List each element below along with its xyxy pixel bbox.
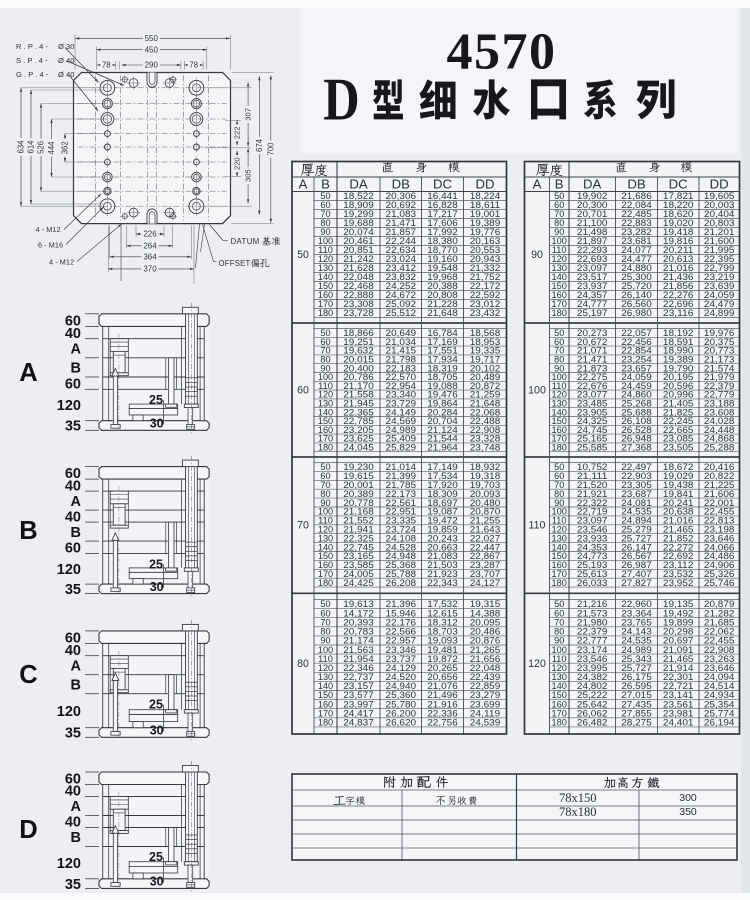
svg-text:180: 180 <box>552 578 567 588</box>
svg-text:110: 110 <box>529 519 546 531</box>
svg-text:220: 220 <box>233 157 242 170</box>
svg-text:40: 40 <box>65 509 81 525</box>
svg-text:550: 550 <box>145 34 159 43</box>
svg-text:D: D <box>323 66 359 132</box>
svg-text:40: 40 <box>65 643 81 659</box>
svg-text:180: 180 <box>318 718 333 728</box>
svg-text:30: 30 <box>150 875 164 889</box>
svg-text:G . P . 4 -: G . P . 4 - <box>16 70 49 79</box>
svg-text:B: B <box>71 677 81 693</box>
svg-text:B: B <box>321 177 330 192</box>
svg-text:364: 364 <box>143 252 157 261</box>
svg-text:526: 526 <box>37 141 46 154</box>
svg-text:40: 40 <box>65 326 81 342</box>
svg-text:A: A <box>71 799 82 815</box>
svg-text:26,033: 26,033 <box>577 578 608 588</box>
svg-text:A: A <box>299 177 308 192</box>
svg-text:120: 120 <box>57 398 81 414</box>
svg-text:DC: DC <box>669 177 689 192</box>
svg-text:Ø 40: Ø 40 <box>58 70 74 79</box>
svg-text:25,512: 25,512 <box>386 308 417 318</box>
svg-text:180: 180 <box>318 578 333 588</box>
svg-text:Ø 40: Ø 40 <box>58 56 74 65</box>
svg-text:120: 120 <box>57 704 81 720</box>
svg-text:180: 180 <box>318 308 333 318</box>
svg-text:B: B <box>71 361 81 377</box>
svg-text:264: 264 <box>143 241 157 250</box>
svg-text:4570: 4570 <box>447 24 557 81</box>
svg-text:S . P . 4 -: S . P . 4 - <box>16 56 48 65</box>
svg-text:A: A <box>533 177 542 192</box>
svg-text:290: 290 <box>145 61 159 70</box>
svg-text:25,585: 25,585 <box>577 443 608 453</box>
svg-text:23,432: 23,432 <box>470 308 501 318</box>
svg-text:B: B <box>71 830 81 846</box>
svg-text:25,746: 25,746 <box>704 578 735 588</box>
svg-text:370: 370 <box>143 265 157 274</box>
svg-text:Ø 30: Ø 30 <box>58 42 74 51</box>
svg-text:22,343: 22,343 <box>427 578 458 588</box>
svg-text:30: 30 <box>150 580 164 594</box>
svg-text:25: 25 <box>149 697 163 711</box>
svg-text:26,620: 26,620 <box>386 718 417 728</box>
svg-text:60: 60 <box>65 541 81 557</box>
svg-text:674: 674 <box>255 138 264 152</box>
svg-text:B: B <box>19 517 37 545</box>
svg-text:35: 35 <box>65 726 81 742</box>
svg-text:A: A <box>19 359 37 387</box>
svg-text:A: A <box>71 494 82 510</box>
svg-text:DC: DC <box>433 177 453 192</box>
svg-text:78x150: 78x150 <box>559 791 597 805</box>
svg-text:180: 180 <box>552 308 567 318</box>
svg-text:22,756: 22,756 <box>427 718 458 728</box>
svg-text:444: 444 <box>47 141 56 155</box>
svg-text:300: 300 <box>679 792 697 804</box>
svg-text:24,401: 24,401 <box>663 718 694 728</box>
svg-text:23,728: 23,728 <box>343 308 374 318</box>
svg-text:OFFSET: OFFSET <box>219 259 251 268</box>
svg-text:21,964: 21,964 <box>427 443 458 453</box>
svg-text:35: 35 <box>65 419 81 435</box>
svg-text:24,045: 24,045 <box>343 443 374 453</box>
svg-text:30: 30 <box>150 724 164 738</box>
svg-text:350: 350 <box>679 806 697 818</box>
svg-text:226: 226 <box>143 230 157 239</box>
svg-text:24,127: 24,127 <box>470 578 501 588</box>
svg-text:24,539: 24,539 <box>470 718 501 728</box>
svg-text:C: C <box>19 661 37 689</box>
svg-text:4 - M12: 4 - M12 <box>36 225 61 234</box>
svg-text:180: 180 <box>552 443 567 453</box>
svg-text:DA: DA <box>583 177 602 192</box>
svg-text:362: 362 <box>61 141 70 154</box>
svg-text:78x180: 78x180 <box>559 805 597 819</box>
svg-text:80: 80 <box>297 658 309 670</box>
svg-text:23,116: 23,116 <box>663 308 694 318</box>
svg-text:30: 30 <box>150 417 164 431</box>
svg-text:21,648: 21,648 <box>427 308 458 318</box>
svg-text:DB: DB <box>627 177 646 192</box>
svg-text:28,275: 28,275 <box>621 718 652 728</box>
svg-text:40: 40 <box>65 784 81 800</box>
svg-text:6 - M16: 6 - M16 <box>38 241 63 250</box>
svg-text:R . P . 4 -: R . P . 4 - <box>16 42 48 51</box>
svg-text:60: 60 <box>297 385 309 397</box>
svg-text:DD: DD <box>475 177 494 192</box>
svg-text:307: 307 <box>244 108 253 121</box>
svg-text:60: 60 <box>65 376 81 392</box>
svg-text:180: 180 <box>318 443 333 453</box>
svg-text:B: B <box>71 525 81 541</box>
svg-text:305: 305 <box>244 169 253 182</box>
svg-text:25: 25 <box>149 557 163 571</box>
svg-text:40: 40 <box>65 478 81 494</box>
svg-text:25,288: 25,288 <box>704 443 735 453</box>
svg-text:78: 78 <box>102 61 111 70</box>
svg-text:27,827: 27,827 <box>621 578 652 588</box>
svg-text:DATUM: DATUM <box>231 237 260 246</box>
svg-text:D: D <box>19 816 37 844</box>
svg-text:40: 40 <box>65 815 81 831</box>
svg-text:78: 78 <box>189 61 198 70</box>
svg-text:120: 120 <box>57 856 81 872</box>
svg-text:23,748: 23,748 <box>470 443 501 453</box>
svg-text:100: 100 <box>528 385 546 397</box>
svg-text:222: 222 <box>233 127 242 140</box>
svg-text:70: 70 <box>297 519 309 531</box>
svg-text:50: 50 <box>297 249 309 261</box>
svg-text:26,980: 26,980 <box>621 308 652 318</box>
svg-text:35: 35 <box>65 877 81 893</box>
svg-text:23,505: 23,505 <box>663 443 694 453</box>
svg-text:180: 180 <box>552 718 567 728</box>
svg-text:DD: DD <box>710 177 729 192</box>
svg-text:35: 35 <box>65 582 81 598</box>
svg-text:90: 90 <box>531 249 543 261</box>
svg-text:24,425: 24,425 <box>343 578 374 588</box>
svg-text:614: 614 <box>27 140 36 154</box>
svg-text:634: 634 <box>17 140 26 154</box>
svg-text:27,368: 27,368 <box>621 443 652 453</box>
svg-text:DA: DA <box>349 177 368 192</box>
svg-text:25,197: 25,197 <box>577 308 608 318</box>
svg-text:26,194: 26,194 <box>704 718 735 728</box>
svg-text:26,482: 26,482 <box>577 718 608 728</box>
svg-text:25: 25 <box>149 850 163 864</box>
svg-text:26,208: 26,208 <box>386 578 417 588</box>
svg-text:120: 120 <box>57 562 81 578</box>
svg-text:A: A <box>71 658 82 674</box>
svg-text:4 - M12: 4 - M12 <box>49 258 74 267</box>
svg-text:DB: DB <box>392 177 411 192</box>
svg-text:24,899: 24,899 <box>704 308 735 318</box>
svg-text:25: 25 <box>149 393 163 407</box>
svg-text:24,837: 24,837 <box>343 718 374 728</box>
svg-text:23,952: 23,952 <box>663 578 694 588</box>
svg-text:25,829: 25,829 <box>386 443 417 453</box>
svg-text:B: B <box>555 177 564 192</box>
svg-text:450: 450 <box>145 45 159 54</box>
svg-text:120: 120 <box>528 658 546 670</box>
svg-text:A: A <box>71 342 82 358</box>
svg-text:700: 700 <box>266 142 275 156</box>
